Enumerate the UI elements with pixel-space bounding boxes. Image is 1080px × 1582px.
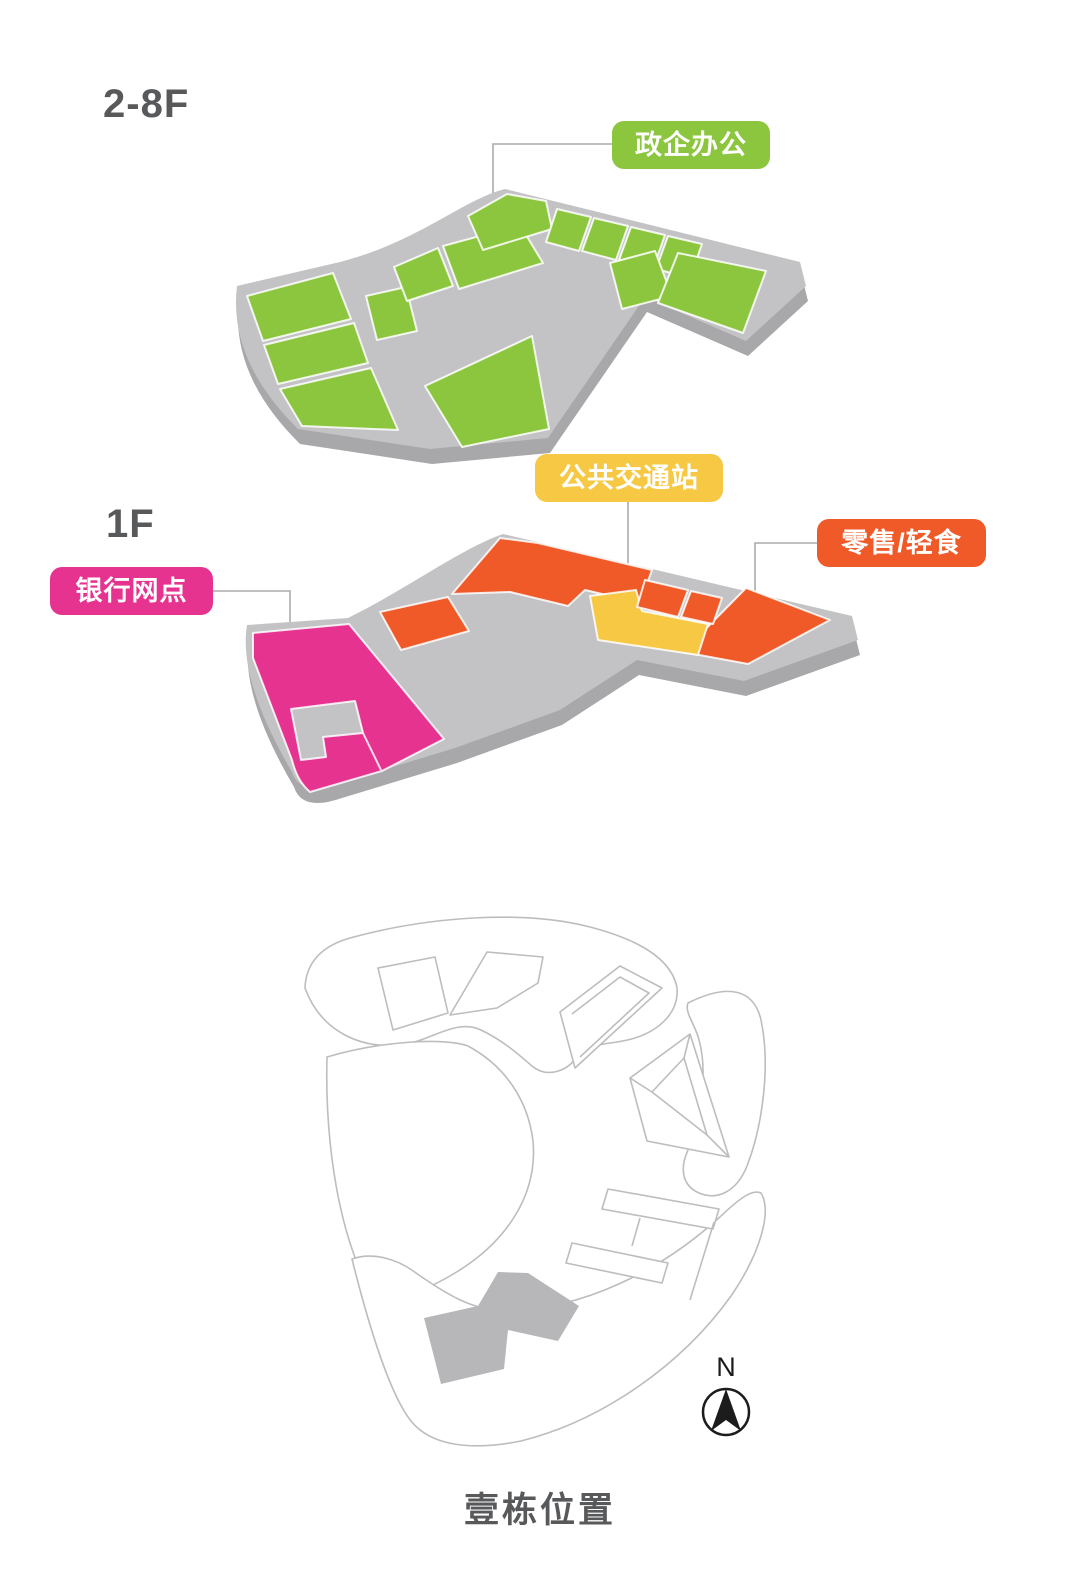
office-zone-label: 政企办公 — [612, 121, 770, 169]
site-plan-title: 壹栋位置 — [0, 1482, 1080, 1533]
diagram-canvas: N — [0, 0, 1080, 1582]
site-bar-building — [566, 1243, 668, 1283]
transit-zone-label: 公共交通站 — [535, 454, 723, 502]
site-bar-building — [602, 1189, 719, 1229]
compass-north-arrow-icon — [711, 1389, 741, 1431]
compass: N — [703, 1352, 749, 1435]
infographic-page: { "colors": { "office_green": "#8CC63F",… — [0, 0, 1080, 1582]
site-plan: N — [305, 917, 765, 1446]
floor-plate-2-8f — [236, 189, 808, 464]
retail-zone-label: 零售/轻食 — [817, 519, 986, 567]
bank-zone-label: 银行网点 — [50, 567, 213, 615]
compass-north-label: N — [716, 1352, 736, 1382]
floor-plate-1f — [246, 534, 860, 803]
